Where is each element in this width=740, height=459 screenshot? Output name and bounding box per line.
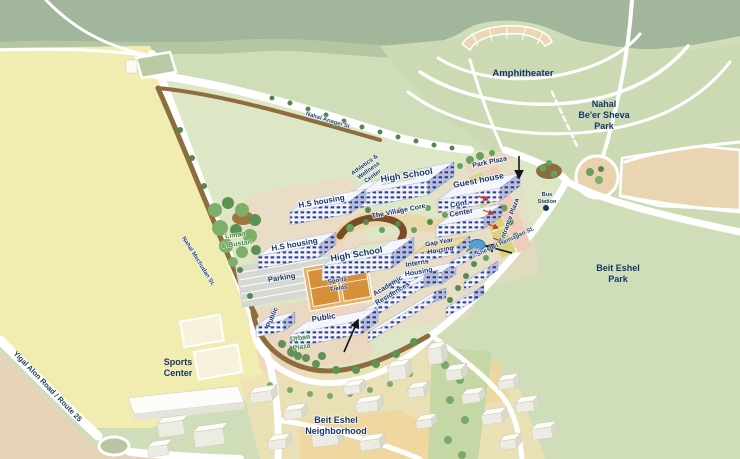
label-beit-eshel-neighborhood: Beit Eshel Neighborhood bbox=[305, 415, 367, 436]
label-bus-line2: Station bbox=[538, 199, 557, 205]
label-sports-center-line2: Center bbox=[164, 368, 193, 378]
label-amphitheater: Amphitheater bbox=[492, 68, 554, 79]
label-bus-line1: Bus bbox=[542, 192, 552, 198]
bus-station-dot bbox=[543, 205, 549, 211]
site-plan-map: Amphitheater Nahal Be'er Sheva Park Beit… bbox=[0, 0, 740, 459]
label-neighborhood-line2: Neighborhood bbox=[305, 426, 367, 436]
label-sports-center-line1: Sports bbox=[164, 357, 193, 367]
label-beit-eshel-park-line2: Park bbox=[608, 274, 629, 284]
label-nahal-park-line2: Be'er Sheva bbox=[578, 110, 630, 120]
map-canvas: Amphitheater Nahal Be'er Sheva Park Beit… bbox=[0, 0, 740, 459]
label-neighborhood-line1: Beit Eshel bbox=[314, 415, 358, 425]
label-nahal-park-line1: Nahal bbox=[592, 99, 617, 109]
label-nahal-park-line3: Park bbox=[594, 121, 615, 131]
label-beit-eshel-park-line1: Beit Eshel bbox=[596, 263, 640, 273]
label-sports-center: Sports Center bbox=[164, 357, 193, 378]
